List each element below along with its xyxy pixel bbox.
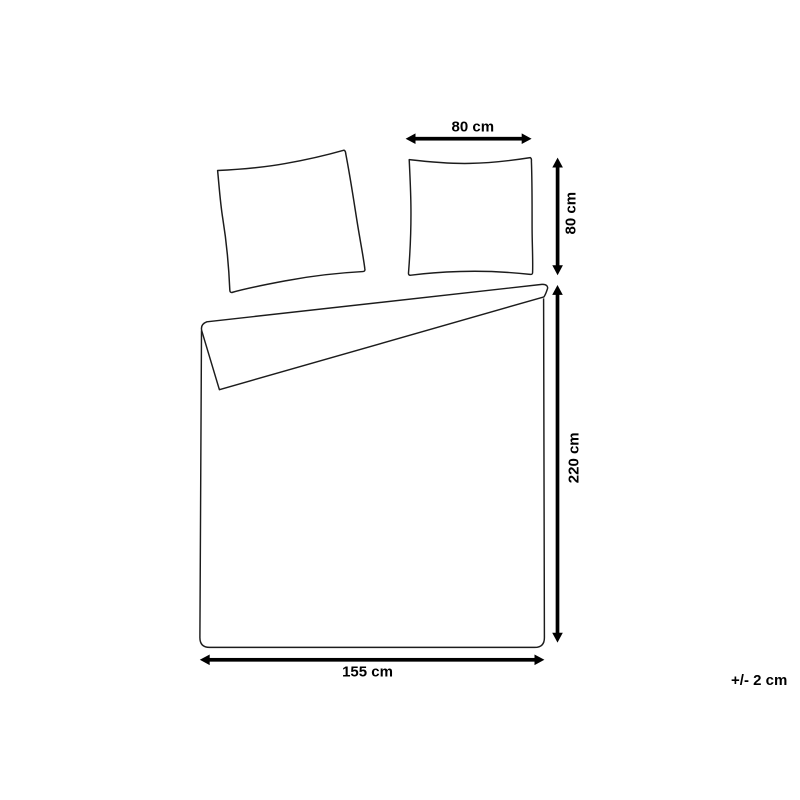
svg-text:155 cm: 155 cm [342,663,393,680]
svg-text:80 cm: 80 cm [563,192,580,235]
svg-text:220 cm: 220 cm [566,432,583,483]
svg-text:+/- 2 cm: +/- 2 cm [731,672,787,689]
svg-text:80 cm: 80 cm [452,119,495,136]
